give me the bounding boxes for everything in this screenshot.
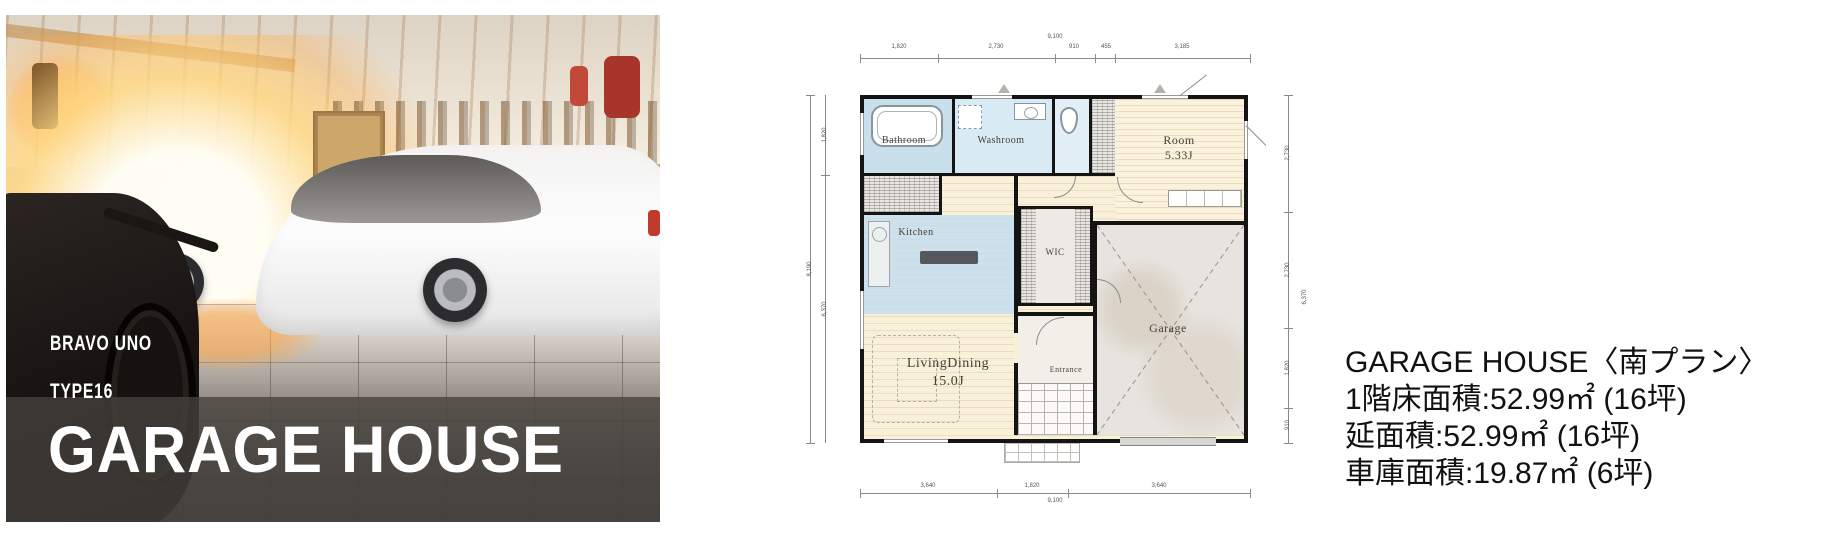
plan-spec-text: GARAGE HOUSE〈南プラン〉 1階床面積:52.99㎡ (16坪) 延面…: [1345, 344, 1825, 492]
window: [860, 113, 864, 155]
dimension-tick: [1250, 54, 1251, 63]
brand-label: BRAVO UNO: [50, 333, 152, 354]
kitchen-pantry: [864, 176, 942, 215]
dimension-label: 2,730: [988, 44, 1003, 50]
dimension-tick: [1284, 443, 1293, 444]
dimension-label: 455: [1101, 44, 1111, 50]
dimension-tick: [1055, 54, 1056, 63]
room-label-bathroom: Bathroom: [882, 135, 926, 148]
vent-marker: [998, 84, 1010, 93]
type-label: TYPE16: [50, 381, 113, 402]
dimension-label: 3,185: [1174, 44, 1189, 50]
window: [884, 439, 948, 443]
room-label-room: Room 5.33J: [1163, 133, 1194, 163]
window: [1142, 95, 1188, 99]
vent-marker: [1154, 84, 1166, 93]
dimension-tick: [1068, 489, 1069, 498]
wic-shelf: [1021, 209, 1036, 303]
dimension-tick: [821, 175, 830, 176]
room-label-garage: Garage: [1149, 321, 1187, 336]
dimension-total-bottom: 9,100: [1047, 498, 1062, 504]
dimension-label: 1,820: [1024, 483, 1039, 489]
floor1-area: 1階床面積:52.99㎡ (16坪): [1345, 381, 1825, 418]
window: [972, 95, 1012, 99]
dimension-total-left: 8,190: [807, 252, 813, 286]
dimension-label: 3,640: [1151, 483, 1166, 489]
dimension-tick: [997, 489, 998, 498]
dimension-label: 1,820: [1285, 351, 1291, 385]
room-desk: [1168, 190, 1242, 207]
dimension-label: 6,370: [822, 292, 828, 326]
dimension-tick: [1250, 489, 1251, 498]
page: BRAVO UNO TYPE16 GARAGE HOUSE 9,100 1,82…: [0, 0, 1830, 545]
dimension-label: 2,730: [1285, 253, 1291, 287]
garage-door: [1120, 437, 1216, 446]
car-rear-wheel: [423, 258, 487, 322]
room-area: 5.33J: [1165, 148, 1193, 162]
dimension-line-bottom: [860, 493, 1250, 494]
door-swing-arc: [1054, 176, 1076, 198]
dimension-label: 910: [1285, 408, 1291, 442]
total-area: 延面積:52.99㎡ (16坪): [1345, 418, 1825, 455]
garage-area: 車庫面積:19.87㎡ (6坪): [1345, 455, 1825, 492]
dimension-total-right: 6,370: [1302, 280, 1308, 314]
window-swing-mark: [1179, 75, 1206, 97]
room-label-kitchen: Kitchen: [898, 227, 933, 240]
washing-machine: [958, 105, 982, 129]
dimension-tick: [938, 54, 939, 63]
room-closet: [1089, 99, 1115, 176]
room-label-living-dining: LivingDining 15.0J: [907, 355, 989, 390]
dimension-label: 2,730: [1285, 136, 1291, 170]
entrance-porch-steps: [1004, 443, 1080, 463]
room-name: Room: [1163, 133, 1194, 147]
car-taillight: [648, 210, 660, 236]
red-jacket: [604, 56, 640, 118]
plan-title: GARAGE HOUSE〈南プラン〉: [1345, 344, 1825, 381]
entrance-tile-floor: [1018, 383, 1093, 435]
window: [860, 291, 864, 349]
dimension-tick: [860, 489, 861, 498]
hero-title: GARAGE HOUSE: [48, 416, 564, 482]
dimension-tick: [1284, 328, 1293, 329]
room-label-entrance: Entrance: [1050, 365, 1082, 375]
dimension-tick: [806, 95, 815, 96]
kitchen-counter: [868, 221, 890, 287]
wic-shelf: [1075, 209, 1090, 303]
room-name: LivingDining: [907, 356, 989, 371]
floor-plan: 9,100 1,820 2,730 910 455 3,185 3,640 1,…: [780, 30, 1340, 535]
room-label-washroom: Washroom: [977, 135, 1024, 148]
dimension-tick: [806, 443, 815, 444]
room-label-wic: WIC: [1046, 247, 1065, 258]
building-outline: Bathroom Washroom Room 5.33J Kitchen WIC…: [860, 95, 1248, 443]
dimension-label: 1,820: [891, 44, 906, 50]
window-swing-mark: [1246, 125, 1267, 146]
dimension-tick: [1095, 54, 1096, 63]
dimension-tick: [1284, 95, 1293, 96]
garage-photo: BRAVO UNO TYPE16 GARAGE HOUSE: [6, 15, 660, 522]
vanity-sink: [1014, 103, 1046, 120]
kitchen-island: [920, 251, 978, 264]
dimension-tick: [860, 54, 861, 63]
red-gear: [570, 66, 588, 106]
dimension-label: 3,640: [920, 483, 935, 489]
dimension-tick: [1284, 212, 1293, 213]
dimension-total-top: 9,100: [1047, 34, 1062, 40]
room-area: 15.0J: [932, 374, 964, 389]
dimension-tick: [1115, 54, 1116, 63]
dimension-label: 910: [1069, 44, 1079, 50]
dimension-label: 1,820: [822, 118, 828, 152]
